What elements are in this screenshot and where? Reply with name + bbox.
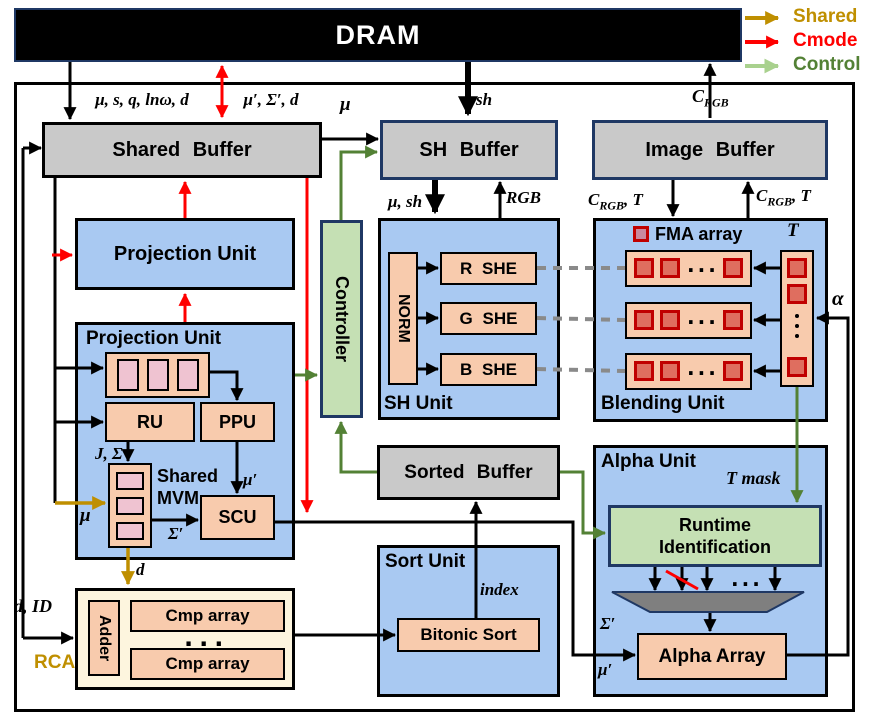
architecture-diagram: DRAM Shared Cmode Control Shared Buffer … [0,0,872,723]
crgb-sub: RGB [704,96,729,110]
image-buffer: Image Buffer [592,120,828,180]
signal-mu-sh: μ, sh [388,192,422,212]
fma-cell [723,310,743,330]
ppu-block: PPU [200,402,275,442]
r-she-label: R SHE [460,259,517,279]
shared-mvm-label-line2: MVM [157,488,218,510]
signal-d: d [136,560,145,580]
sh-unit-title: SH Unit [384,393,453,415]
signal-mu-mvm: μ [80,505,91,527]
legend-arrows [745,18,778,66]
cmp-array-top: Cmp array [130,600,285,632]
signal-mu-s-q-lnw-d: μ, s, q, lnω, d [76,90,208,110]
fma-cell [660,361,680,381]
signal-crgb-t-left: CRGB, T [588,190,643,213]
gaussian-fifo [105,352,210,398]
rca-dots: ··· [184,632,229,656]
bitonic-sort-label: Bitonic Sort [420,625,516,645]
b-she-block: B SHE [440,353,537,386]
controller-label: Controller [331,276,352,362]
fifo-cell [177,359,199,391]
projection-unit-title: Projection Unit [86,328,221,350]
ru-block: RU [105,402,195,442]
alpha-unit-title: Alpha Unit [601,451,696,473]
r-she-block: R SHE [440,252,537,285]
fma-cell [723,361,743,381]
signal-sigma-prime-pu: Σ′ [168,524,183,544]
mvm-cell [116,522,144,540]
fma-cell [723,258,743,278]
sh-buffer-label: SH Buffer [419,139,518,162]
adder-block: Adder [88,600,120,676]
fma-row-dots: ··· [687,260,719,280]
fifo-cell [117,359,139,391]
shared-mvm-block [108,463,152,548]
mvm-cell [116,472,144,490]
g-she-label: G SHE [460,309,518,329]
t-column-dots [795,314,799,338]
crgb-base: C [756,186,767,205]
alpha-array-label: Alpha Array [659,646,766,668]
signal-sh: sh [476,90,492,110]
controller: Controller [320,220,363,418]
signal-t-mask: T mask [726,468,781,489]
rca-label: RCA [34,652,75,674]
runtime-label-line2: Identification [659,536,771,559]
image-buffer-label: Image Buffer [645,139,774,162]
shared-mvm-label: Shared MVM [157,466,218,509]
fma-cell [660,258,680,278]
fma-row: ··· [625,302,752,339]
mvm-cell [116,497,144,515]
sort-unit-title: Sort Unit [385,551,465,573]
signal-d-id: d, ID [14,596,52,617]
adder-label: Adder [95,615,113,661]
signal-rgb: RGB [506,188,541,208]
norm-label: NORM [394,294,412,343]
shared-mvm-label-line1: Shared [157,466,218,488]
fma-cell [634,361,654,381]
crgb-t-suffix: , T [792,186,811,205]
signal-mu-sigma-d: μ′, Σ′, d [228,90,314,110]
sorted-buffer: Sorted Buffer [377,445,560,500]
fma-row: ··· [625,250,752,287]
g-she-block: G SHE [440,302,537,335]
fma-cell [634,310,654,330]
fma-cell [634,258,654,278]
projection-unit-top: Projection Unit [75,218,295,290]
crgb-sub: RGB [767,194,792,208]
ru-label: RU [137,412,163,433]
signal-mu-prime-alpha: μ′ [598,660,612,680]
projection-unit-top-label: Projection Unit [114,243,256,266]
signal-crgb-top: CRGB [692,86,729,111]
b-she-label: B SHE [460,360,517,380]
scu-label: SCU [218,507,256,528]
runtime-output-dots: ··· [731,574,763,594]
sorted-buffer-label: Sorted Buffer [404,462,532,484]
shared-buffer: Shared Buffer [42,122,322,178]
fma-cell [660,310,680,330]
dram-title: DRAM [336,20,421,51]
shared-buffer-label: Shared Buffer [112,139,251,162]
t-cell [787,258,807,278]
signal-crgb-t-right: CRGB, T [756,186,811,209]
t-cell [787,284,807,304]
fma-legend-icon [633,226,649,242]
crgb-base: C [588,190,599,209]
legend-label-control: Control [793,54,861,76]
legend-label-cmode: Cmode [793,30,857,52]
fifo-cell [147,359,169,391]
alpha-array-block: Alpha Array [637,633,787,680]
legend-label-shared: Shared [793,6,857,28]
signal-index: index [480,580,519,600]
bitonic-sort-block: Bitonic Sort [397,618,540,652]
signal-j-sigma: J, Σ [95,444,123,464]
cmp-array-top-label: Cmp array [165,606,249,626]
signal-mu-prime-pu: μ′ [243,470,257,490]
dram-block: DRAM [14,8,742,62]
norm-block: NORM [388,252,418,385]
crgb-base: C [692,86,704,106]
sh-buffer: SH Buffer [380,120,558,180]
t-cell [787,357,807,377]
fma-row-dots: ··· [687,363,719,383]
crgb-sub: RGB [599,198,624,212]
t-column [780,250,814,387]
ppu-label: PPU [219,412,256,433]
runtime-label-line1: Runtime [659,514,771,537]
signal-alpha: α [832,286,844,311]
blending-unit-title: Blending Unit [601,393,724,415]
fma-row: ··· [625,353,752,390]
signal-sigma-prime-alpha: Σ′ [600,614,615,634]
runtime-identification-block: Runtime Identification [608,505,822,567]
fma-row-dots: ··· [687,312,719,332]
fma-legend-label: FMA array [655,224,742,245]
signal-mu-top: μ [340,94,351,116]
crgb-t-suffix: , T [624,190,643,209]
t-column-label: T [787,220,799,242]
